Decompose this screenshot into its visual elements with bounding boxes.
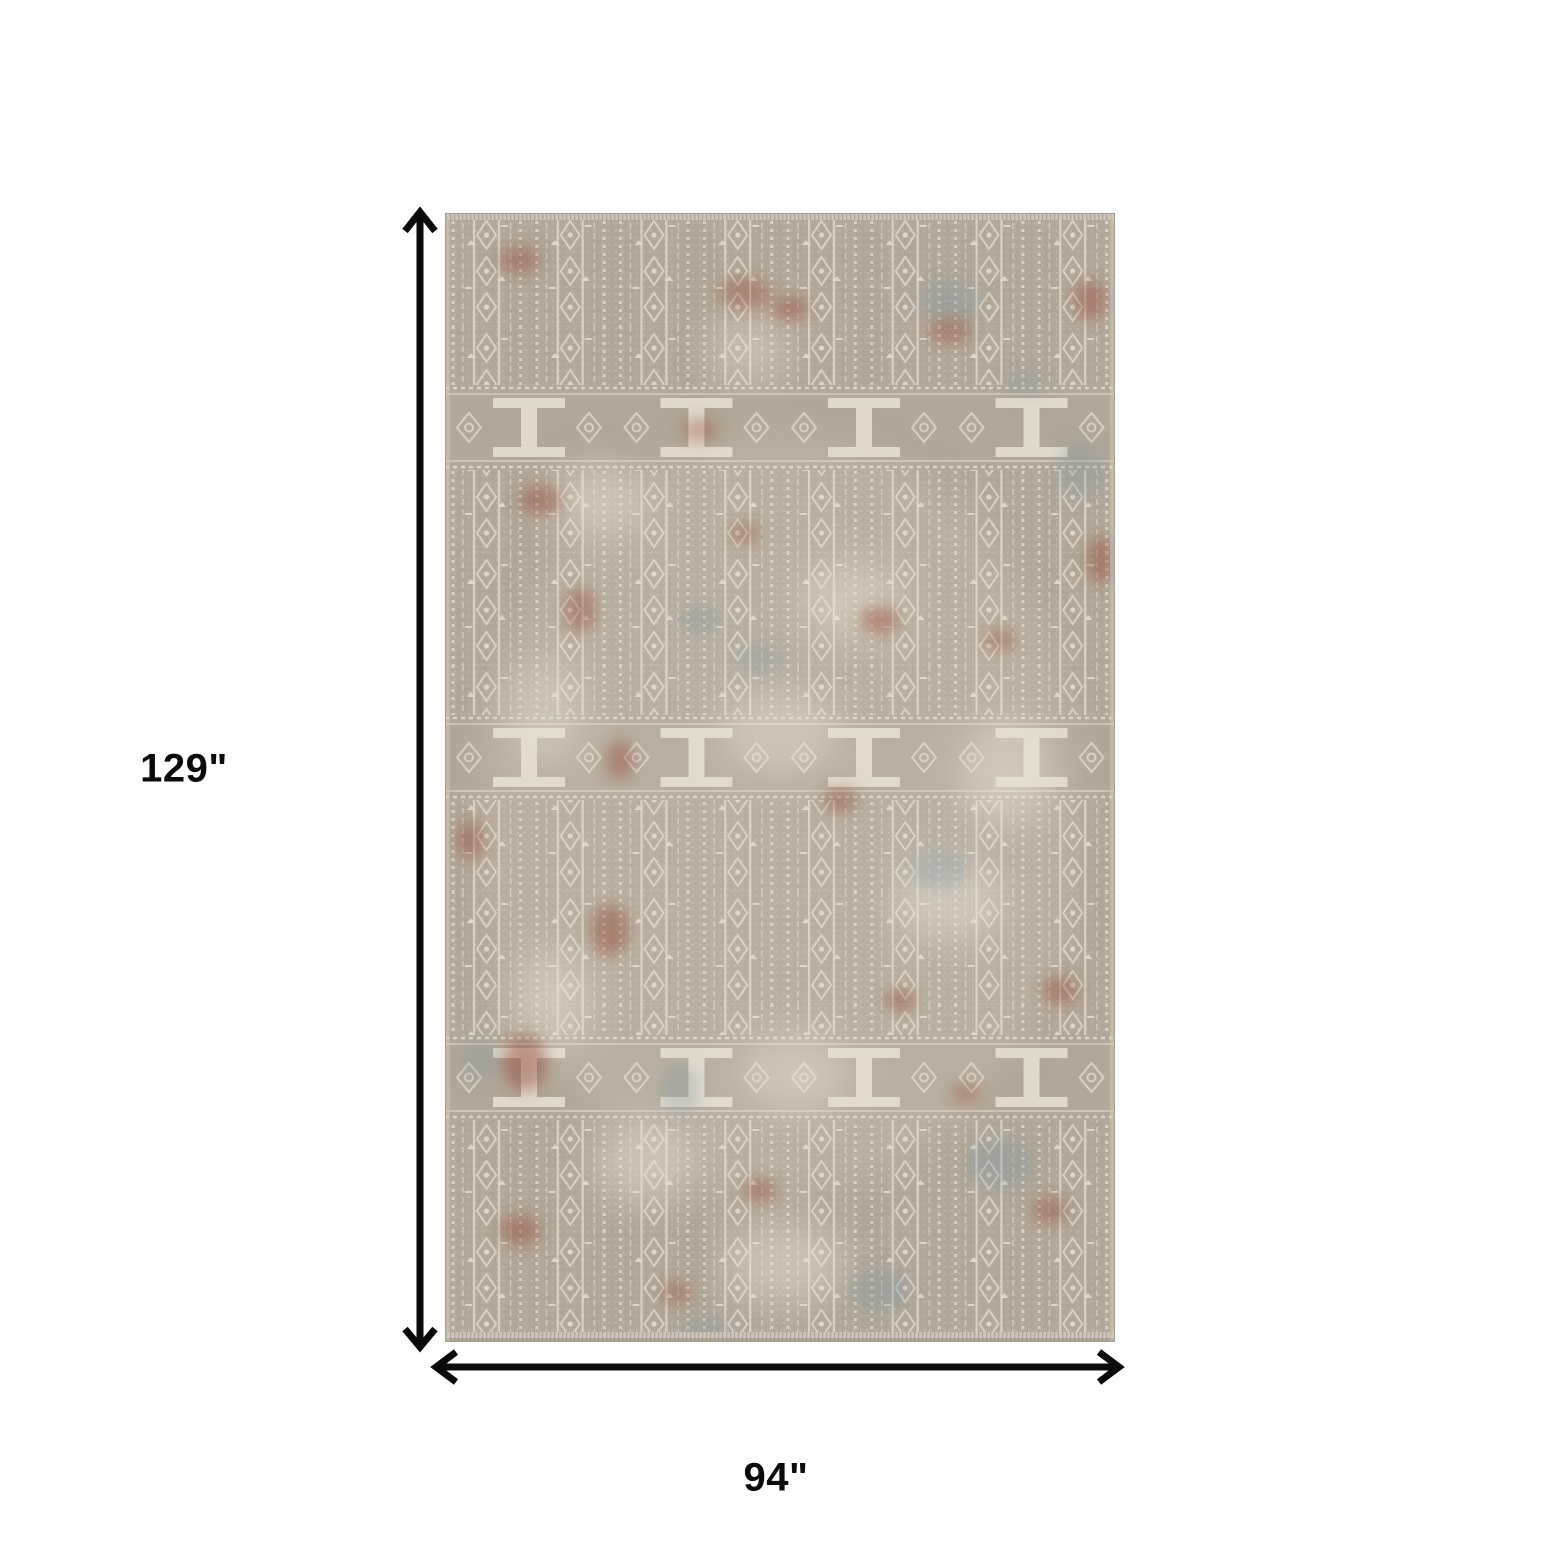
dimension-diagram: 129" 94" [0,0,1560,1560]
rug-product-image [445,213,1115,1342]
height-dimension-label: 129" [140,747,228,792]
rug-photo [445,213,1115,1342]
width-dimension-label: 94" [744,1456,809,1501]
width-dimension-arrow [436,1352,1119,1382]
height-dimension-arrow [405,212,435,1347]
